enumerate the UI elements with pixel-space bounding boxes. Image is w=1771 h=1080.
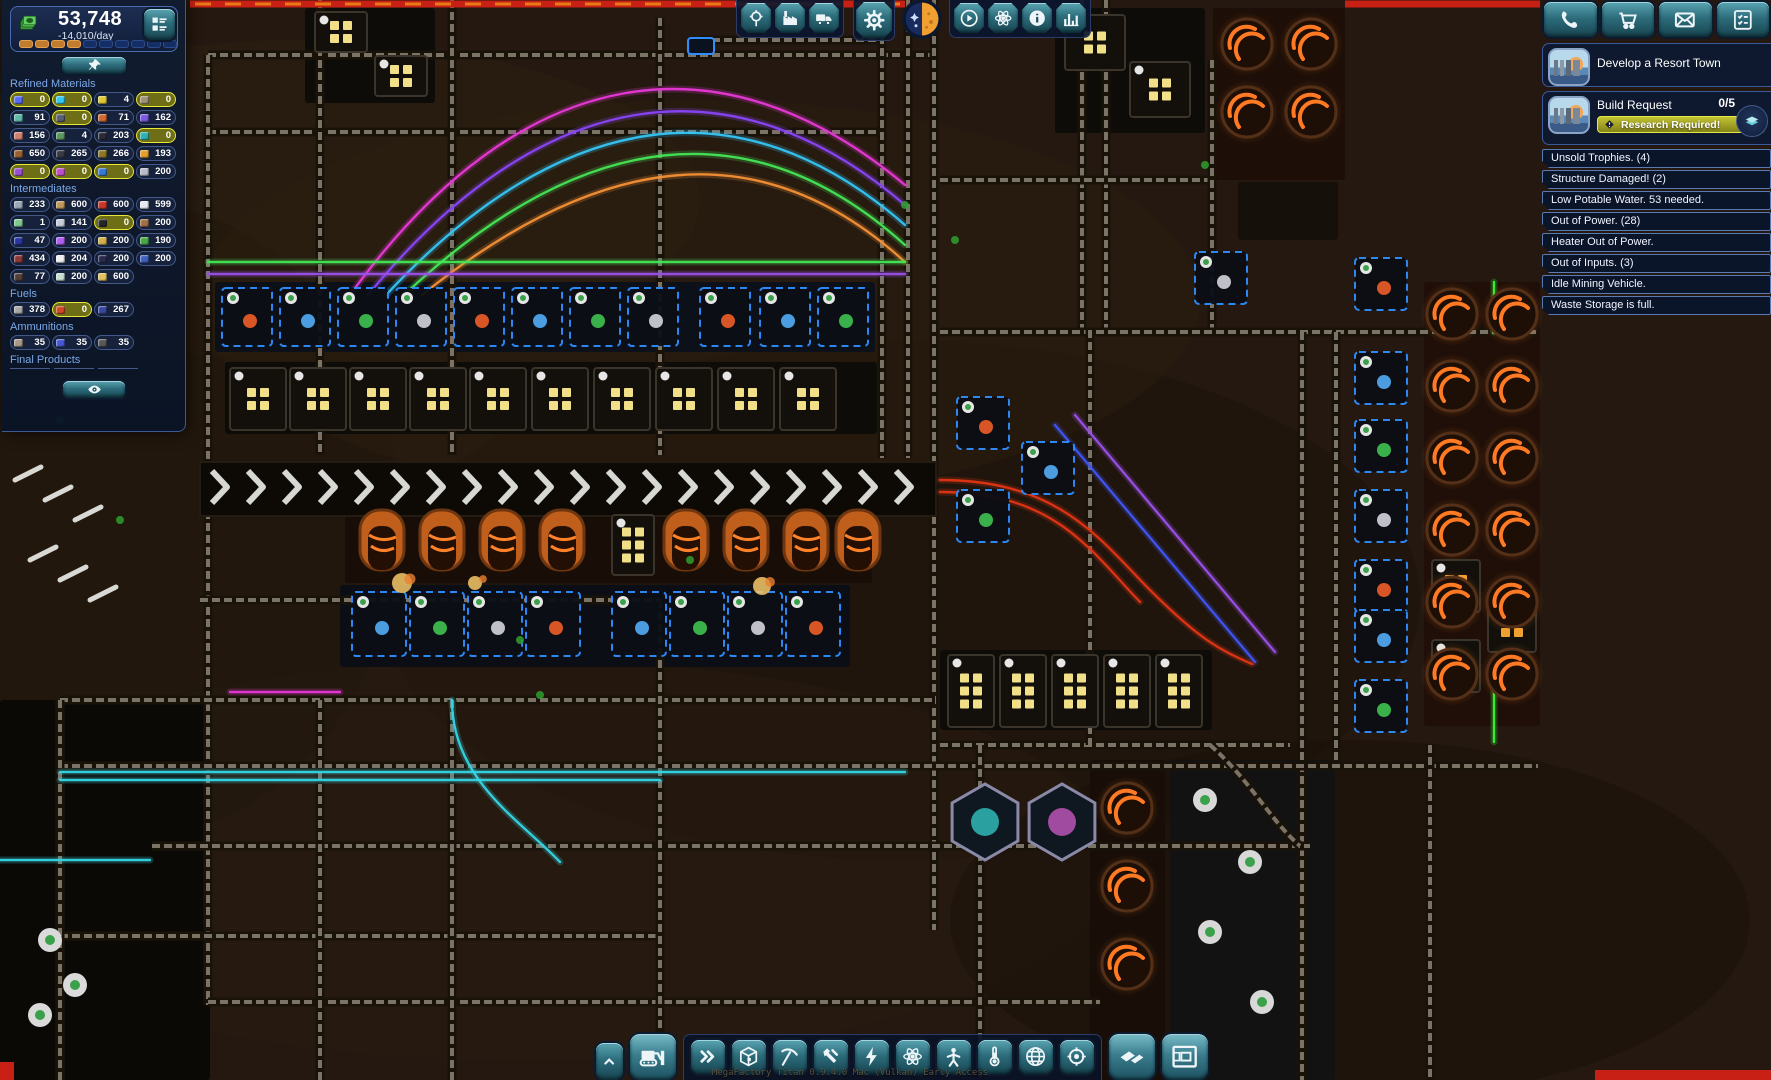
play-button[interactable] <box>954 3 984 33</box>
resource-count: 200 <box>65 235 87 246</box>
resource-icon <box>98 237 107 245</box>
resource-count: 600 <box>65 199 87 210</box>
resource-pill[interactable]: 200 <box>94 251 134 266</box>
truck-button[interactable] <box>809 3 839 33</box>
resource-pill[interactable]: 200 <box>136 215 176 230</box>
resource-count: 200 <box>107 253 129 264</box>
resource-count: 193 <box>149 148 171 159</box>
resource-count: 200 <box>107 235 129 246</box>
money-value: 53,748 <box>58 8 122 31</box>
resource-count: 141 <box>65 217 87 228</box>
resource-count: 91 <box>23 112 45 123</box>
resource-icon <box>56 114 65 122</box>
resource-count: 0 <box>23 166 45 177</box>
progress-segment <box>67 40 81 48</box>
resource-count: 0 <box>149 94 171 105</box>
resource-icon <box>56 219 65 227</box>
resource-icon <box>14 201 23 209</box>
resource-icon <box>56 132 65 140</box>
gear-button[interactable] <box>856 2 892 38</box>
resource-pill[interactable]: 91 <box>10 110 50 125</box>
resource-pill[interactable]: 0 <box>136 92 176 107</box>
resource-icon <box>14 96 23 104</box>
resource-icon <box>140 114 149 122</box>
target-button[interactable] <box>1060 1040 1094 1074</box>
resource-icon <box>98 96 107 104</box>
banner-label: Research Required! <box>1621 119 1720 131</box>
resource-pill[interactable]: 1 <box>10 215 50 230</box>
resource-pill[interactable]: 0 <box>94 164 134 179</box>
pickaxe-button[interactable] <box>773 1040 807 1074</box>
resource-icon <box>140 132 149 140</box>
resource-count: 35 <box>107 337 129 348</box>
resource-pill-stub <box>54 368 94 373</box>
resource-pill[interactable]: 35 <box>10 335 50 350</box>
resource-count: 378 <box>23 304 45 315</box>
resource-count: 77 <box>23 271 45 282</box>
resource-icon <box>98 273 107 281</box>
resource-count: 4 <box>65 130 87 141</box>
resource-icon <box>140 237 149 245</box>
money-icon <box>18 14 48 41</box>
progress-segment <box>115 40 129 48</box>
resource-icon <box>14 255 23 263</box>
resource-icon <box>14 219 23 227</box>
resource-count: 0 <box>149 130 171 141</box>
resource-icon <box>98 114 107 122</box>
resource-pill[interactable]: 0 <box>52 164 92 179</box>
resource-pill[interactable]: 378 <box>10 302 50 317</box>
resource-count: 0 <box>107 217 129 228</box>
build-toolbar <box>596 1034 1208 1080</box>
resource-pill[interactable]: 600 <box>52 197 92 212</box>
mail-button[interactable] <box>1659 2 1712 37</box>
resource-icon <box>98 150 107 158</box>
info-button[interactable] <box>1022 3 1052 33</box>
quest-thumbnail <box>1548 96 1590 134</box>
resource-count: 0 <box>65 304 87 315</box>
resource-icon <box>56 306 65 314</box>
resource-count: 47 <box>23 235 45 246</box>
resource-pill-stub <box>98 368 138 373</box>
resource-pill[interactable]: 0 <box>52 92 92 107</box>
resource-icon <box>140 96 149 104</box>
resource-icon <box>98 201 107 209</box>
resource-icon <box>98 168 107 176</box>
alerts-panel: Develop a Resort Town Build Request 0/5 … <box>1542 0 1771 317</box>
resource-pill[interactable]: 4 <box>94 92 134 107</box>
locator-button[interactable] <box>741 3 771 33</box>
resource-icon <box>56 237 65 245</box>
resource-icon <box>98 132 107 140</box>
resource-icon <box>140 219 149 227</box>
bulldozer-button[interactable] <box>630 1034 676 1080</box>
resource-icon <box>14 339 23 347</box>
notification-item[interactable]: Waste Storage is full. <box>1542 296 1771 315</box>
resource-count: 71 <box>107 112 129 123</box>
resource-count: 162 <box>149 112 171 123</box>
resource-count: 0 <box>65 112 87 123</box>
resource-count: 600 <box>107 271 129 282</box>
resource-pill[interactable]: 434 <box>10 251 50 266</box>
notification-item[interactable]: Unsold Trophies. (4) <box>1542 149 1771 168</box>
resource-pill[interactable]: 650 <box>10 146 50 161</box>
progress-segment <box>51 40 65 48</box>
resource-pill[interactable]: 193 <box>136 146 176 161</box>
resource-pill[interactable]: 233 <box>10 197 50 212</box>
resource-pill[interactable]: 200 <box>136 251 176 266</box>
globe-button[interactable] <box>1019 1040 1053 1074</box>
resource-icon <box>14 132 23 140</box>
resource-pill[interactable]: 0 <box>94 215 134 230</box>
quest-card-build-request[interactable]: Build Request 0/5 Research Required! <box>1542 91 1771 145</box>
resource-icon <box>140 201 149 209</box>
resource-count: 0 <box>107 166 129 177</box>
section-label: Ammunitions <box>10 321 178 333</box>
resource-count: 267 <box>107 304 129 315</box>
science-button[interactable] <box>896 1040 930 1074</box>
citizen-button[interactable] <box>937 1040 971 1074</box>
resource-count: 35 <box>65 337 87 348</box>
notification-item[interactable]: Out of Power. (28) <box>1542 212 1771 231</box>
resource-pill[interactable]: 77 <box>10 269 50 284</box>
notification-item[interactable]: Out of Inputs. (3) <box>1542 254 1771 273</box>
resource-icon <box>140 255 149 263</box>
resource-count: 599 <box>149 199 171 210</box>
progress-segment <box>99 40 113 48</box>
resource-pill[interactable]: 203 <box>94 128 134 143</box>
quest-title: Develop a Resort Town <box>1597 56 1767 70</box>
research-badge[interactable] <box>1736 105 1768 137</box>
resource-pill[interactable]: 4 <box>52 128 92 143</box>
factory-map[interactable] <box>0 0 1771 1080</box>
power-button[interactable] <box>855 1040 889 1074</box>
resource-sections: Refined Materials00409107116215642030650… <box>10 78 178 373</box>
progress-segment <box>19 40 33 48</box>
resource-pill[interactable]: 0 <box>10 92 50 107</box>
quest-thumbnail <box>1548 48 1590 86</box>
resource-count: 200 <box>149 166 171 177</box>
money-box: 53,748 -14,010/day <box>10 6 178 52</box>
resource-count: 200 <box>149 253 171 264</box>
toolbar-group <box>683 1034 1102 1080</box>
game-screen: 53,748 -14,010/day Refined Materials0040… <box>0 0 1771 1080</box>
resource-count: 0 <box>23 94 45 105</box>
pin-button[interactable] <box>62 57 126 74</box>
resource-pill[interactable]: 204 <box>52 251 92 266</box>
section-label: Refined Materials <box>10 78 178 90</box>
resource-icon <box>14 114 23 122</box>
warning-icon <box>1603 118 1616 131</box>
resource-pill[interactable]: 267 <box>94 302 134 317</box>
resource-icon <box>56 255 65 263</box>
resource-pill[interactable]: 0 <box>52 302 92 317</box>
resource-pill[interactable]: 35 <box>52 335 92 350</box>
resource-count: 233 <box>23 199 45 210</box>
resource-pill[interactable]: 141 <box>52 215 92 230</box>
progress-segment <box>131 40 145 48</box>
resource-pill[interactable]: 0 <box>10 164 50 179</box>
section-label: Final Products <box>10 354 178 366</box>
progress-segment <box>35 40 49 48</box>
resource-count: 35 <box>23 337 45 348</box>
section-label: Fuels <box>10 288 178 300</box>
resource-count: 266 <box>107 148 129 159</box>
resource-pill[interactable]: 200 <box>94 233 134 248</box>
progress-segment <box>163 40 177 48</box>
visibility-button[interactable] <box>63 381 125 398</box>
resource-pill[interactable]: 200 <box>52 233 92 248</box>
resource-count: 434 <box>23 253 45 264</box>
resource-pill[interactable]: 35 <box>94 335 134 350</box>
resource-pill[interactable]: 599 <box>136 197 176 212</box>
resource-icon <box>14 168 23 176</box>
resource-pill[interactable]: 190 <box>136 233 176 248</box>
toolbar-group <box>736 0 844 38</box>
resource-icon <box>98 255 107 263</box>
resource-count: 4 <box>107 94 129 105</box>
daynight-button[interactable] <box>904 1 940 37</box>
resource-count: 0 <box>65 94 87 105</box>
build-tools-button[interactable] <box>814 1040 848 1074</box>
resource-pill[interactable]: 0 <box>136 128 176 143</box>
resource-count: 200 <box>65 271 87 282</box>
resource-count: 190 <box>149 235 171 246</box>
resource-pill[interactable]: 600 <box>94 197 134 212</box>
resource-icon <box>14 150 23 158</box>
resource-pill[interactable]: 200 <box>52 269 92 284</box>
progress-segment <box>83 40 97 48</box>
resource-icon <box>56 201 65 209</box>
resource-icon <box>98 219 107 227</box>
collapse-button[interactable] <box>596 1043 623 1080</box>
resource-icon <box>140 168 149 176</box>
resource-pill[interactable]: 265 <box>52 146 92 161</box>
tasks-button[interactable] <box>1717 2 1770 37</box>
toolbar-group <box>853 0 895 41</box>
fast-forward-button[interactable] <box>691 1040 725 1074</box>
resource-count: 1 <box>23 217 45 228</box>
resource-icon <box>56 150 65 158</box>
section-label: Intermediates <box>10 183 178 195</box>
resource-icon <box>14 306 23 314</box>
resource-count: 600 <box>107 199 129 210</box>
resource-icon <box>140 150 149 158</box>
resource-count: 156 <box>23 130 45 141</box>
phone-button[interactable] <box>1544 2 1597 37</box>
resource-pill[interactable]: 47 <box>10 233 50 248</box>
resource-pill[interactable]: 200 <box>136 164 176 179</box>
comm-action-buttons <box>1542 0 1771 39</box>
notification-item[interactable]: Heater Out of Power. <box>1542 233 1771 252</box>
top-toolbar <box>736 0 1091 41</box>
resource-icon <box>56 339 65 347</box>
resource-icon <box>98 339 107 347</box>
notification-list: Unsold Trophies. (4)Structure Damaged! (… <box>1542 149 1771 315</box>
resource-panel: 53,748 -14,010/day Refined Materials0040… <box>2 0 186 432</box>
resource-icon <box>98 306 107 314</box>
resource-icon <box>14 237 23 245</box>
quest-card-resort[interactable]: Develop a Resort Town <box>1542 43 1771 87</box>
notification-item[interactable]: Idle Mining Vehicle. <box>1542 275 1771 294</box>
resource-icon <box>14 273 23 281</box>
resource-count: 650 <box>23 148 45 159</box>
resource-count: 265 <box>65 148 87 159</box>
resource-pill[interactable]: 266 <box>94 146 134 161</box>
toolbar-group <box>949 0 1091 38</box>
resource-pill[interactable]: 71 <box>94 110 134 125</box>
resource-count: 204 <box>65 253 87 264</box>
resource-icon <box>56 168 65 176</box>
factory-button[interactable] <box>775 3 805 33</box>
tiles-button[interactable] <box>1109 1034 1155 1080</box>
science-button[interactable] <box>988 3 1018 33</box>
notification-item[interactable]: Structure Damaged! (2) <box>1542 170 1771 189</box>
progress-segment <box>147 40 161 48</box>
notification-item[interactable]: Low Potable Water. 53 needed. <box>1542 191 1771 210</box>
cart-button[interactable] <box>1602 2 1655 37</box>
quest-progress-count: 0/5 <box>1718 96 1735 110</box>
toolbar-group <box>904 0 940 37</box>
thermometer-button[interactable] <box>978 1040 1012 1074</box>
resource-count: 0 <box>65 166 87 177</box>
portfolio-button[interactable] <box>144 9 175 40</box>
resource-pill[interactable]: 600 <box>94 269 134 284</box>
resource-pill[interactable]: 162 <box>136 110 176 125</box>
resource-count: 203 <box>107 130 129 141</box>
resource-pill[interactable]: 156 <box>10 128 50 143</box>
resource-pill[interactable]: 0 <box>52 110 92 125</box>
resource-icon <box>56 96 65 104</box>
blueprint-button[interactable] <box>1162 1034 1208 1080</box>
resource-count: 200 <box>149 217 171 228</box>
box-button[interactable] <box>732 1040 766 1074</box>
stats-button[interactable] <box>1056 3 1086 33</box>
resource-pill-stub <box>10 368 50 373</box>
money-progress-bar <box>19 40 177 48</box>
resource-icon <box>56 273 65 281</box>
